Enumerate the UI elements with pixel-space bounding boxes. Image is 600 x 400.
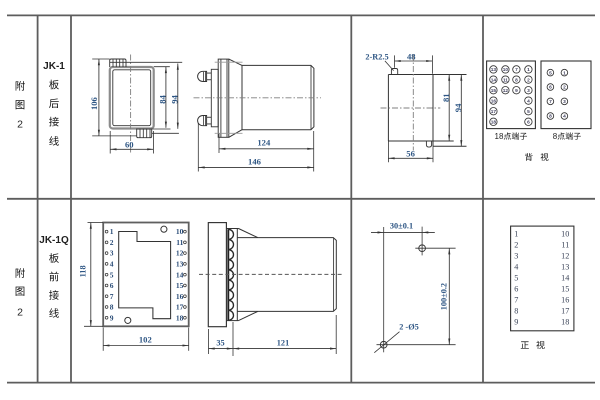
svg-text:11: 11 (503, 77, 508, 83)
svg-text:1: 1 (563, 70, 566, 76)
svg-text:10: 10 (561, 230, 569, 239)
svg-text:17: 17 (176, 303, 184, 312)
svg-text:16: 16 (176, 292, 184, 301)
svg-text:3: 3 (110, 249, 114, 258)
svg-text:JK-1Q: JK-1Q (39, 235, 69, 246)
svg-text:14: 14 (561, 274, 569, 283)
svg-text:124: 124 (257, 138, 271, 148)
svg-text:10: 10 (176, 227, 184, 236)
svg-text:35: 35 (216, 338, 224, 347)
svg-text:2: 2 (110, 238, 114, 247)
svg-text:13: 13 (491, 67, 497, 73)
svg-text:18: 18 (176, 313, 184, 322)
svg-text:94: 94 (170, 95, 180, 104)
svg-text:4: 4 (514, 263, 518, 272)
svg-text:5: 5 (110, 270, 114, 279)
svg-text:1: 1 (527, 67, 530, 73)
svg-text:84: 84 (157, 95, 167, 104)
svg-text:12: 12 (561, 252, 569, 261)
svg-text:12: 12 (176, 249, 184, 258)
svg-text:4: 4 (527, 98, 530, 104)
svg-text:16: 16 (491, 98, 497, 104)
svg-text:16: 16 (561, 296, 569, 305)
svg-text:6: 6 (527, 120, 530, 126)
svg-text:6: 6 (110, 281, 114, 290)
svg-text:13: 13 (561, 263, 569, 272)
svg-text:14: 14 (176, 270, 184, 279)
svg-text:15: 15 (176, 281, 184, 290)
svg-text:7: 7 (110, 292, 114, 301)
svg-text:3: 3 (563, 99, 566, 105)
svg-text:4: 4 (563, 114, 566, 120)
svg-text:3: 3 (527, 88, 530, 94)
svg-text:14: 14 (491, 77, 497, 83)
svg-text:8: 8 (549, 114, 552, 120)
svg-text:12: 12 (503, 88, 509, 94)
svg-text:2-R2.5: 2-R2.5 (365, 53, 388, 62)
svg-text:81: 81 (441, 93, 451, 102)
svg-text:2 -Ø5: 2 -Ø5 (399, 323, 419, 332)
svg-text:7: 7 (515, 67, 518, 73)
svg-text:118: 118 (78, 265, 87, 277)
svg-text:8: 8 (553, 132, 558, 141)
svg-text:18: 18 (561, 318, 569, 327)
svg-text:6: 6 (514, 285, 518, 294)
svg-text:15: 15 (561, 285, 569, 294)
svg-text:2: 2 (17, 306, 23, 318)
svg-text:9: 9 (515, 88, 518, 94)
svg-text:7: 7 (514, 296, 518, 305)
svg-text:94: 94 (453, 103, 463, 112)
svg-text:17: 17 (561, 307, 569, 316)
svg-text:4: 4 (110, 260, 114, 269)
svg-text:106: 106 (89, 96, 99, 110)
svg-text:2: 2 (563, 85, 566, 91)
svg-text:JK-1: JK-1 (43, 61, 65, 72)
svg-text:146: 146 (248, 156, 262, 166)
svg-text:6: 6 (549, 85, 552, 91)
svg-text:1: 1 (514, 230, 518, 239)
svg-text:60: 60 (125, 140, 134, 150)
svg-text:18: 18 (491, 120, 497, 126)
svg-text:56: 56 (406, 149, 415, 159)
svg-text:9: 9 (110, 313, 114, 322)
svg-text:1: 1 (110, 227, 114, 236)
svg-text:102: 102 (139, 335, 152, 345)
svg-text:7: 7 (549, 99, 552, 105)
svg-text:5: 5 (527, 109, 530, 115)
svg-text:121: 121 (277, 338, 289, 347)
svg-text:48: 48 (407, 51, 416, 61)
svg-text:3: 3 (514, 252, 518, 261)
svg-text:30±0.1: 30±0.1 (390, 222, 413, 231)
svg-text:8: 8 (515, 77, 518, 83)
svg-text:5: 5 (514, 274, 518, 283)
svg-text:5: 5 (549, 70, 552, 76)
svg-text:15: 15 (491, 88, 497, 94)
svg-text:2: 2 (514, 241, 518, 250)
svg-text:11: 11 (176, 238, 183, 247)
svg-text:2: 2 (17, 119, 23, 131)
svg-text:11: 11 (561, 241, 569, 250)
svg-text:18: 18 (495, 132, 504, 141)
svg-text:2: 2 (527, 77, 530, 83)
svg-text:17: 17 (491, 109, 497, 115)
svg-text:8: 8 (514, 307, 518, 316)
svg-text:100±0.2: 100±0.2 (439, 283, 448, 310)
svg-text:13: 13 (176, 260, 184, 269)
svg-text:9: 9 (514, 318, 518, 327)
svg-text:8: 8 (110, 303, 114, 312)
svg-text:10: 10 (503, 67, 509, 73)
